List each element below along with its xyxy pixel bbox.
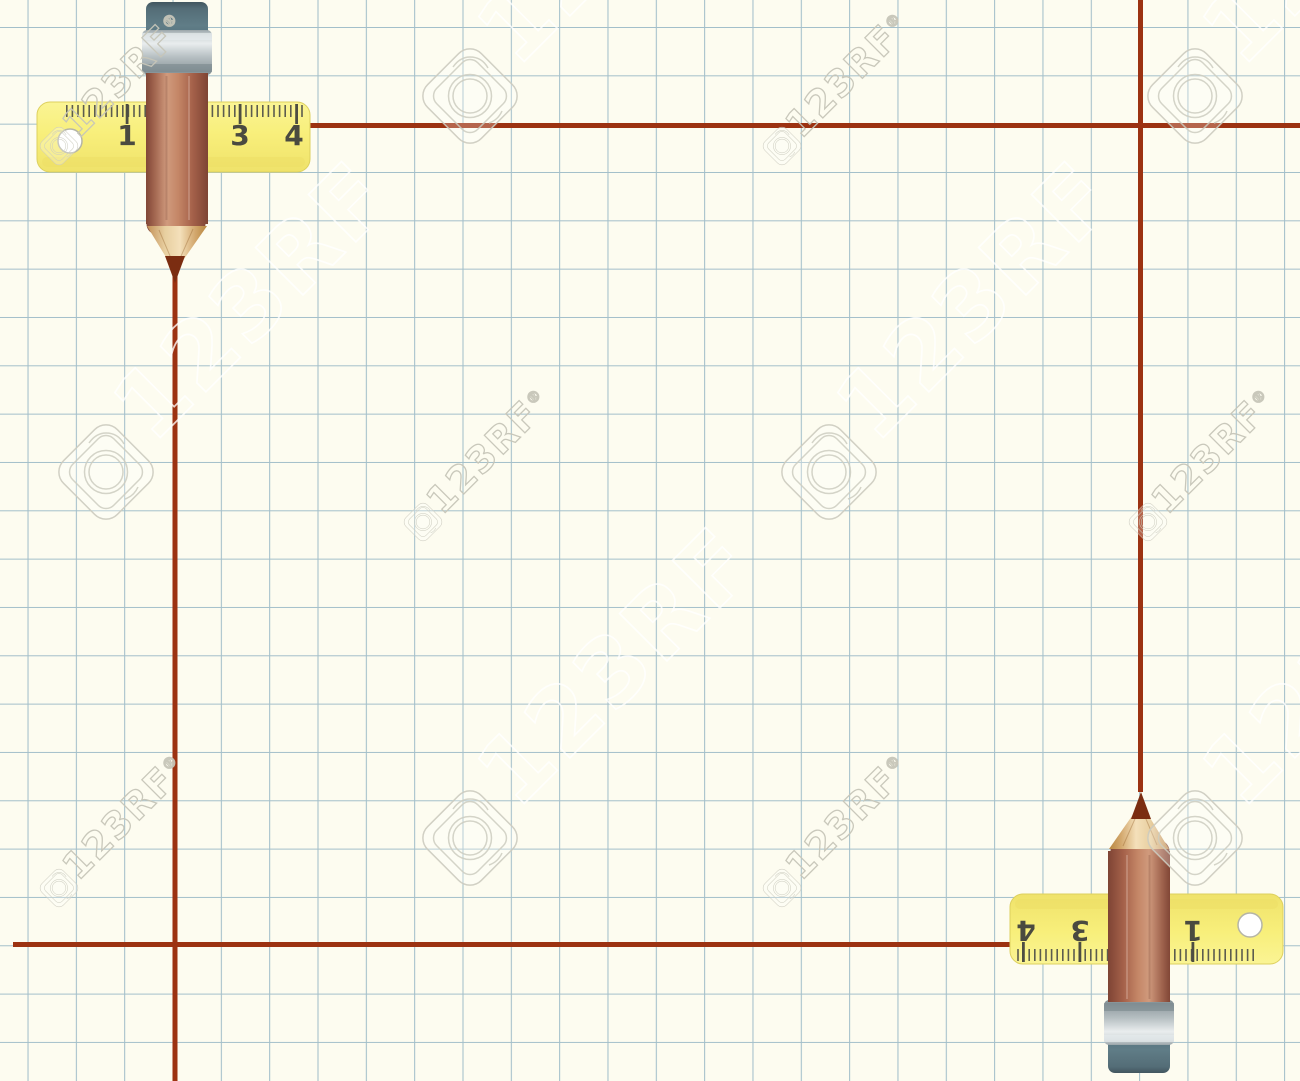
ruler-number: 3 <box>230 119 249 152</box>
ruler-number: 4 <box>1016 914 1035 947</box>
ruler-number: 1 <box>1183 914 1202 947</box>
ruler-number: 3 <box>1070 914 1089 947</box>
graph-paper-scene: 123RF® 123RF 1 3 4 4 3 1 <box>0 0 1300 1081</box>
stock-illustration-graph-paper-frame: 123RF® 123RF 1 3 4 4 3 1 <box>0 0 1300 1081</box>
ruler-number: 1 <box>117 119 136 152</box>
ruler-number: 4 <box>284 119 303 152</box>
